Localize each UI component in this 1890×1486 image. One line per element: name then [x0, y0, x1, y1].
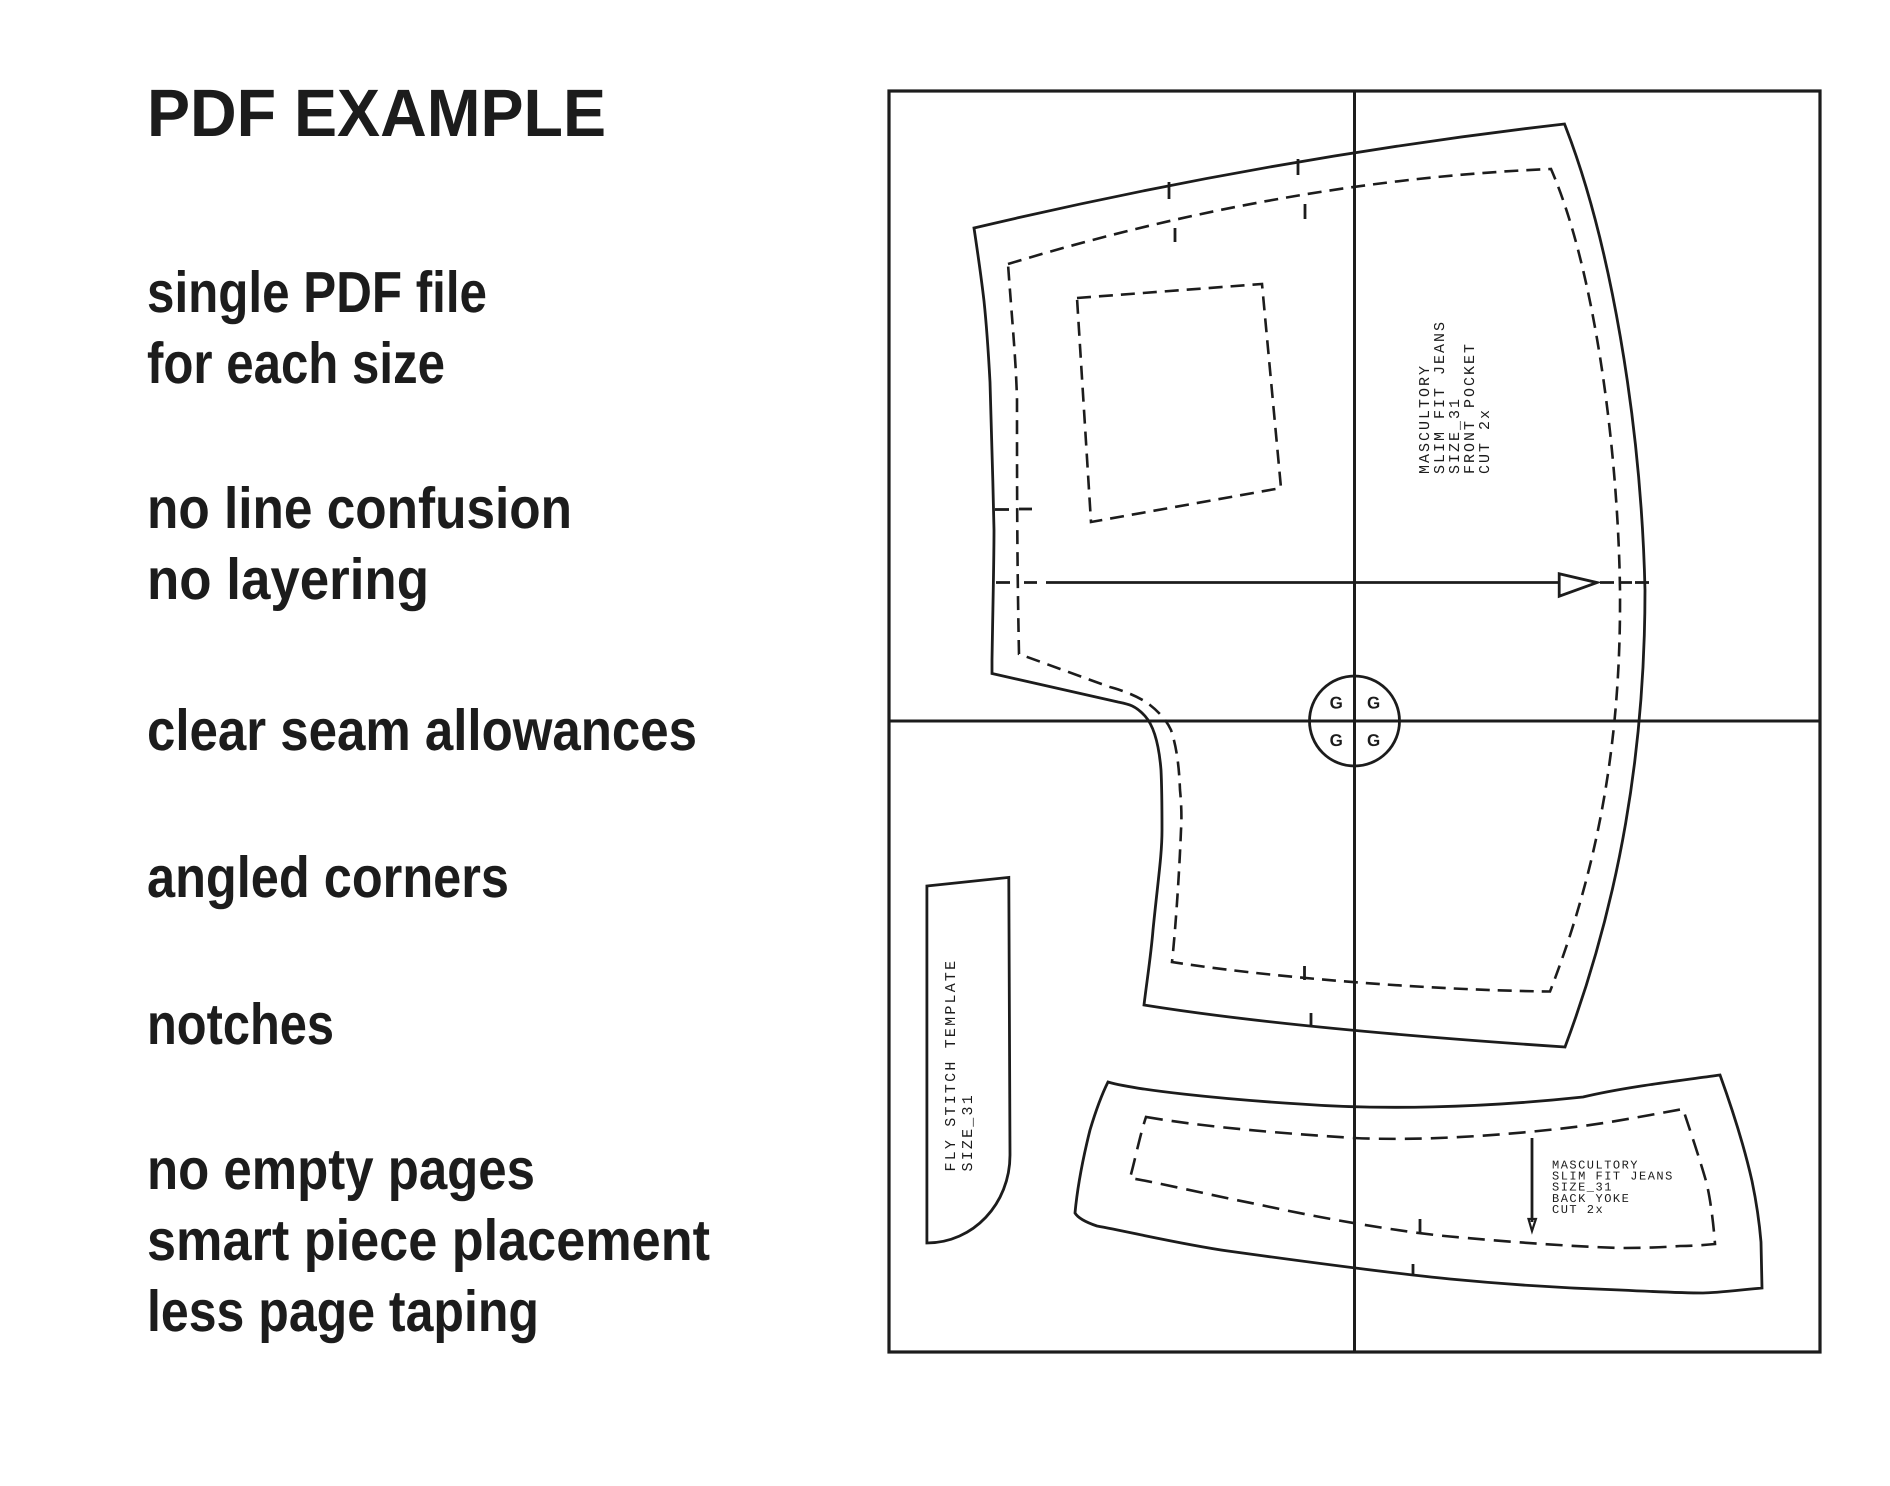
svg-text:no layering: no layering: [147, 547, 429, 612]
svg-text:angled corners: angled corners: [147, 845, 509, 910]
svg-text:clear seam allowances: clear seam allowances: [147, 698, 697, 763]
svg-text:G: G: [1330, 731, 1343, 750]
svg-text:G: G: [1330, 694, 1343, 713]
svg-text:no line confusion: no line confusion: [147, 476, 572, 541]
svg-text:smart piece placement: smart piece placement: [147, 1208, 710, 1273]
svg-text:no empty pages: no empty pages: [147, 1137, 535, 1202]
svg-text:G: G: [1367, 731, 1380, 750]
svg-text:less page taping: less page taping: [147, 1279, 539, 1344]
svg-text:for each size: for each size: [147, 331, 445, 396]
svg-text:G: G: [1367, 694, 1380, 713]
svg-text:single PDF file: single PDF file: [147, 260, 487, 325]
svg-text:PDF EXAMPLE: PDF EXAMPLE: [147, 76, 606, 151]
svg-text:notches: notches: [147, 992, 334, 1057]
